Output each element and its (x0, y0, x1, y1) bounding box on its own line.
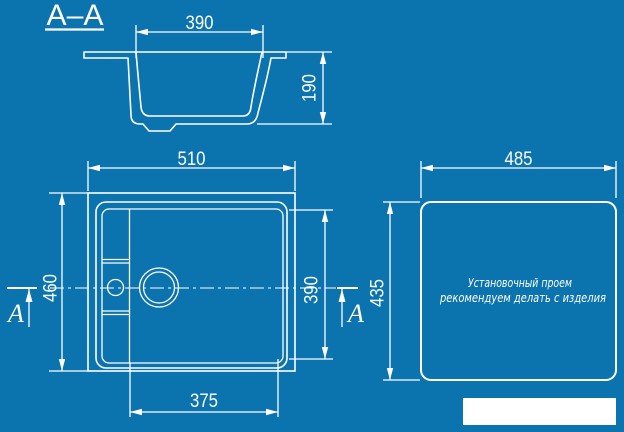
dim-section-opening-width-value: 390 (186, 13, 214, 34)
cutout-note-line2: рекомендуем делать с изделия (439, 290, 606, 305)
logo-box (463, 398, 616, 425)
dim-plan-bowl-depth-value: 390 (302, 276, 323, 304)
sink-technical-drawing: A–A 390 190 (0, 0, 624, 432)
dim-plan-bowl-width-value: 375 (190, 391, 218, 412)
dim-plan-overall-depth-value: 460 (41, 274, 62, 302)
background (0, 0, 624, 432)
dim-plan-overall-width-value: 510 (178, 149, 206, 170)
cut-letter-right: A (346, 299, 364, 328)
dim-cutout-height-value: 435 (368, 279, 389, 307)
section-view-title: A–A (47, 0, 104, 32)
cut-letter-left: A (6, 299, 24, 328)
cutout-note-line1: Установочный проем (468, 275, 572, 290)
dim-section-depth-value: 190 (300, 74, 321, 102)
dim-cutout-width-value: 485 (505, 149, 533, 170)
